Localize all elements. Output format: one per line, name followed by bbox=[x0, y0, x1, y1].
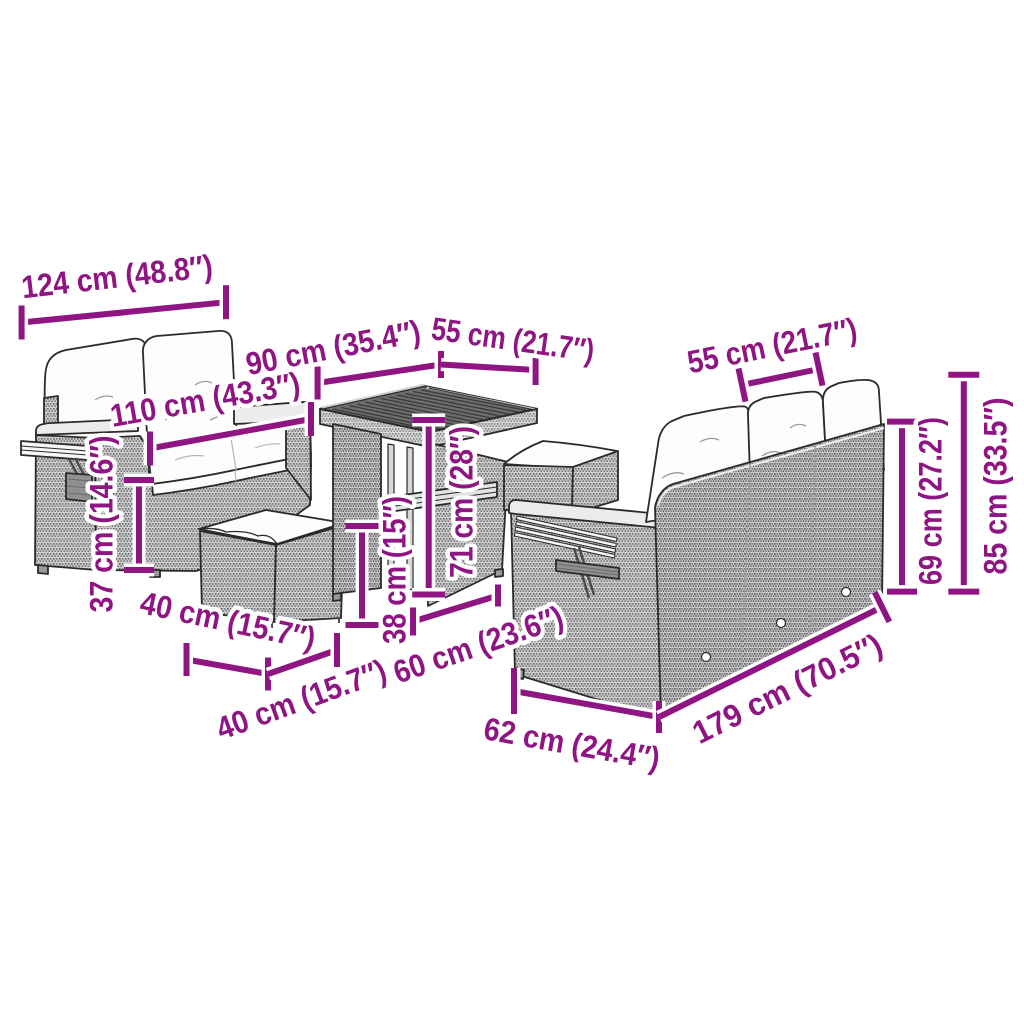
svg-text:85 cm (33.5″): 85 cm (33.5″) bbox=[978, 398, 1014, 575]
svg-text:37 cm (14.6″): 37 cm (14.6″) bbox=[84, 436, 120, 613]
svg-text:71 cm (28″): 71 cm (28″) bbox=[444, 426, 480, 578]
svg-text:69 cm (27.2″): 69 cm (27.2″) bbox=[913, 417, 949, 585]
